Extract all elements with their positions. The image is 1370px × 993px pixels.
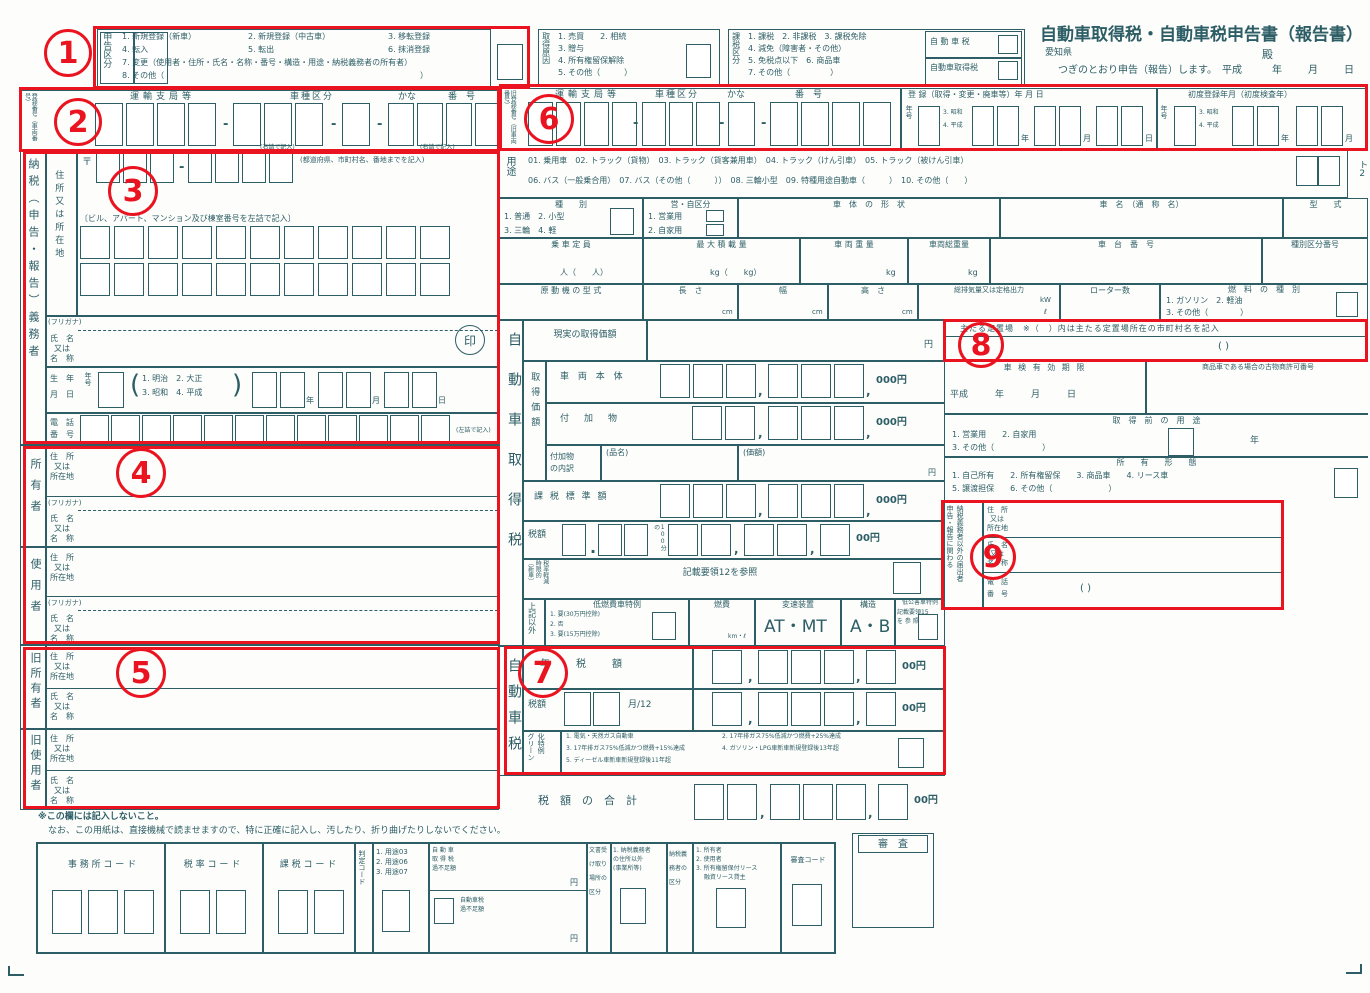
yoto-code-box[interactable] (1296, 156, 1318, 186)
birth-label: 生 年 (50, 374, 74, 384)
kyu-shiyosha-label: 旧使用者 (27, 734, 43, 806)
entry-box[interactable] (997, 106, 1019, 146)
jidoshazei-check-box[interactable] (998, 35, 1018, 54)
jusho-label: 所在地 (50, 672, 74, 682)
entry-box[interactable] (114, 226, 144, 259)
entry-box[interactable] (642, 102, 666, 146)
tax-declaration-form: 申告区分 1. 新規登録（新車） 2. 新規登録（中古車） 3. 移転登録 4.… (0, 0, 1370, 993)
entry-box[interactable] (768, 484, 798, 518)
entry-box[interactable] (1321, 106, 1343, 146)
tel-paren[interactable]: ( ) (1080, 582, 1091, 595)
atena-box[interactable] (716, 888, 746, 928)
entry-box[interactable] (346, 372, 371, 408)
birth-label: 月 日 (50, 390, 74, 400)
address-boxes (80, 263, 450, 296)
entry-box[interactable] (420, 226, 450, 259)
entry-box[interactable] (820, 524, 850, 556)
separator: - (376, 117, 383, 132)
saidai-unit: kg（ kg） (710, 268, 761, 278)
entry-box[interactable] (660, 484, 690, 518)
entry-box[interactable] (126, 103, 154, 146)
kubun-no-header: 種別区分番号 (1262, 240, 1368, 250)
entry-box[interactable] (834, 364, 864, 398)
yen000: 000円 (876, 494, 907, 507)
tel-boxes (80, 415, 450, 442)
teichiba-paren[interactable]: ( ) (1218, 340, 1229, 353)
jokigai-label: 上記以外 (527, 602, 537, 644)
entry-box[interactable] (692, 406, 722, 440)
birth-gengo-box[interactable] (98, 372, 124, 408)
entry-box[interactable] (801, 364, 831, 398)
jusho-label: 所在地 (987, 524, 1008, 532)
postal-boxes (188, 153, 293, 183)
entry-box[interactable] (446, 103, 472, 146)
page-title: 自動車取得税・自動車税申告書（報告書） (1040, 20, 1363, 45)
hensoku-header: 変速装置 (756, 600, 840, 610)
kozo-header: 構造 (842, 600, 894, 610)
hyojun-boxes (660, 484, 756, 518)
keigen-box[interactable] (893, 562, 921, 594)
zeigaku-boxes (758, 692, 854, 726)
entry-box[interactable] (803, 784, 833, 820)
option-label: 1. ガソリン 2. 軽油 (1166, 296, 1242, 306)
annotation-circle-1: 1 (44, 29, 92, 77)
entry-box[interactable] (88, 890, 118, 934)
entry-box[interactable] (660, 364, 690, 398)
entry-box[interactable] (80, 263, 110, 296)
bango-header: 番 号 (795, 90, 822, 101)
keigen-label-group: 〔新車〕 時限的 税率軽減 (526, 560, 548, 584)
atena-label: 務者の (669, 866, 687, 873)
entry-box[interactable] (768, 364, 798, 398)
period: . (590, 538, 596, 557)
hantei-code-box[interactable] (382, 890, 410, 932)
entry-box[interactable] (412, 372, 437, 408)
day-unit: 日 (438, 396, 446, 406)
tel-label: 電 話 (50, 418, 74, 428)
keitai-header: 所 有 形 態 (945, 458, 1368, 468)
entry-box[interactable] (342, 103, 370, 146)
option-label: (事業所等) (613, 866, 642, 873)
entry-box[interactable] (182, 226, 212, 259)
year-unit: 年 (1281, 134, 1289, 144)
entry-box[interactable] (180, 890, 210, 934)
rate-box[interactable] (562, 524, 586, 556)
entry-box[interactable] (696, 102, 720, 146)
entry-box[interactable] (801, 102, 829, 146)
entry-box[interactable] (824, 692, 854, 726)
kisai15-note: を 参 照 (897, 619, 919, 626)
entry-box[interactable] (1096, 106, 1118, 146)
shinkoku-kubun-label: 申告区分 (100, 32, 111, 84)
comma: , (760, 806, 765, 820)
nenzei-boxes (866, 650, 896, 684)
first-reg-header: 初度登録年月（初度検査年） (1188, 90, 1292, 100)
keitai-box[interactable] (1334, 468, 1358, 498)
zeiritsu-code-boxes (180, 890, 246, 934)
zeigaku-label: 税額 (528, 530, 546, 541)
comma: , (856, 670, 861, 684)
annotation-number: 6 (539, 102, 560, 137)
gengo-note: 3. 昭和 (943, 110, 963, 117)
option-label: 2. 自家用 (648, 226, 682, 236)
zeigaku-boxes (866, 692, 896, 726)
shimei-label: 氏 名 (50, 334, 74, 344)
months-box[interactable] (593, 692, 620, 726)
entry-box[interactable] (188, 153, 212, 183)
entry-box[interactable] (284, 226, 314, 259)
entry-box[interactable] (80, 226, 110, 259)
mae-yoto-box[interactable] (1168, 428, 1194, 456)
entry-box[interactable] (148, 263, 178, 296)
entry-box[interactable] (728, 102, 755, 146)
entry-box[interactable] (834, 406, 864, 440)
tel-label: 番 号 (50, 430, 74, 440)
entry-box[interactable] (148, 226, 178, 259)
entry-box[interactable] (157, 103, 185, 146)
touroku-bango-label: 登録番号（車両番号） (23, 93, 36, 147)
entry-box[interactable] (824, 650, 854, 684)
green-box[interactable] (898, 738, 924, 768)
entry-box[interactable] (233, 103, 261, 146)
entry-box[interactable] (475, 103, 501, 146)
entry-box[interactable] (328, 415, 357, 442)
entry-box[interactable] (836, 784, 866, 820)
entry-box[interactable] (142, 415, 171, 442)
atena-label: 区分 (669, 880, 681, 887)
entry-box[interactable] (725, 406, 755, 440)
entry-box[interactable] (417, 103, 443, 146)
gengo-box[interactable] (1174, 106, 1196, 146)
year-unit: 年 (1250, 436, 1259, 447)
entry-box[interactable] (173, 415, 202, 442)
shimei-label: 名 称 (50, 534, 74, 544)
annotation-number: 8 (971, 328, 992, 363)
comma: , (758, 426, 763, 440)
yen-unit: 円 (928, 468, 936, 478)
shinkoku-kubun-code-box[interactable] (497, 44, 523, 80)
yoto-codes-line2: 06. バス（一般乗合用） 07. バス（その他（ ）） 08. 三輪小型 09… (528, 176, 972, 186)
shutokuzei-check-box[interactable] (998, 61, 1018, 80)
entry-box[interactable] (318, 263, 348, 296)
entry-box[interactable] (252, 372, 277, 408)
shinsa-code-box[interactable] (792, 884, 822, 926)
jikayo-box[interactable] (706, 224, 724, 236)
month-boxes (1034, 106, 1081, 146)
option-label: 1. 自己所有 2. 所有権留保 3. 商品車 4. リース車 (952, 471, 1168, 481)
rate-box[interactable] (598, 524, 622, 556)
shinsa-code-header: 審査コード (781, 856, 835, 864)
juryo-header: 車 両 重 量 (800, 240, 908, 250)
year-unit: 年 (306, 396, 314, 406)
todokede-label: 申告・報告に関わる 納税義務者以外の届出者 (946, 505, 964, 582)
address-boxes (80, 226, 450, 259)
bunsho-label: 場所の (589, 876, 607, 883)
kana-header: かな (727, 90, 745, 101)
annotation-number: 7 (533, 656, 554, 691)
entry-box[interactable] (1034, 106, 1056, 146)
option-label: 1. 所有者 (696, 848, 722, 855)
separator: - (222, 117, 229, 132)
entry-box[interactable] (352, 226, 382, 259)
entry-box[interactable] (801, 406, 831, 440)
fukabutsu-label: 付 加 物 (560, 414, 620, 425)
hontai-boxes (768, 364, 864, 398)
entry-box[interactable] (1059, 106, 1081, 146)
entry-box[interactable] (250, 263, 280, 296)
entry-box[interactable] (52, 890, 82, 934)
takasa-header: 高 さ (828, 286, 918, 296)
option-label: の住所以外 (613, 857, 643, 864)
option-label: 1. 納税義務者 (613, 848, 651, 855)
entry-box[interactable] (111, 415, 140, 442)
kafusoku-label: 取 得 税 (432, 857, 454, 864)
yen-unit: 円 (570, 934, 578, 944)
entry-box[interactable] (269, 153, 293, 183)
entry-box[interactable] (280, 372, 305, 408)
entry-box[interactable] (693, 364, 723, 398)
entry-box[interactable] (182, 263, 212, 296)
option-label: 3. 17年排ガス75%低減かつ燃費+15%達成 (566, 746, 685, 753)
option-label: 2. 使用者 (696, 857, 722, 864)
gengo-box[interactable] (918, 106, 940, 146)
entry-box[interactable] (284, 263, 314, 296)
furigana-label: (フリガナ) (48, 599, 81, 607)
option-label: 3. 所有権留保付リース (696, 866, 757, 873)
entry-box[interactable] (770, 784, 800, 820)
yoto-codes-line1: 01. 乗用車 02. トラック（貨物） 03. トラック（貨客兼用車） 04.… (528, 156, 968, 166)
jimusho-code-header: 事 務 所 コ ー ド (44, 860, 160, 871)
entry-box[interactable] (384, 372, 409, 408)
entry-box[interactable] (235, 415, 264, 442)
entry-box[interactable] (421, 415, 450, 442)
mae-yoto-header: 取 得 前 の 用 途 (945, 416, 1368, 426)
entry-box[interactable] (216, 263, 246, 296)
nozei-gimusha-label: 納税（申告・報告）義務者 (25, 158, 41, 438)
option-label: 2. 用途06 (376, 858, 408, 866)
entry-box[interactable] (834, 484, 864, 518)
kyu-touroku-label: 旧登録番号（旧車両番号） (502, 90, 515, 148)
zeigaku-boxes (712, 692, 742, 726)
year-label: 年 (1272, 64, 1282, 77)
shashu-kubun-header: 車種区分 (655, 90, 699, 101)
option-label: 融資リース貸主 (696, 875, 746, 882)
eigyo-box[interactable] (706, 210, 724, 222)
entry-box[interactable] (114, 263, 144, 296)
entry-box[interactable] (669, 102, 693, 146)
entry-box[interactable] (758, 650, 788, 684)
year-boxes (972, 106, 1019, 146)
hinmei-label: (品名) (606, 448, 628, 458)
gengo-note: 3. 昭和 (1199, 110, 1219, 117)
zeigaku-boxes (744, 524, 807, 556)
option-label: 4. 所有権留保解除 (558, 56, 624, 66)
todokede-label-col: 申告・報告に関わる (946, 505, 954, 582)
keigen-label: 時限的 (534, 560, 541, 584)
kogai-box[interactable] (918, 614, 938, 640)
yen00: 00円 (856, 532, 880, 545)
entry-box[interactable] (668, 524, 698, 556)
tel-note: (左詰で記入) (456, 428, 491, 435)
entry-box[interactable] (726, 484, 756, 518)
option-label: 1. 電気・天然ガス自動車 (566, 734, 634, 741)
jusho-label: 又は (54, 662, 70, 672)
entry-box[interactable] (295, 103, 323, 146)
entry-box[interactable] (768, 406, 798, 440)
cm-unit: cm (902, 308, 913, 316)
green-label: グリーン (527, 733, 535, 761)
entry-box[interactable] (124, 890, 154, 934)
entry-box[interactable] (863, 102, 891, 146)
option-label: 8. その他（ (122, 71, 164, 81)
gengo-note: 4. 平成 (1199, 123, 1219, 130)
comma: , (734, 542, 739, 556)
entry-box[interactable] (388, 103, 414, 146)
entry-box[interactable] (297, 415, 326, 442)
kagaku-label: (価額) (743, 448, 765, 458)
entry-box[interactable] (80, 415, 109, 442)
comma: , (866, 426, 871, 440)
separator: - (330, 117, 337, 132)
entry-box[interactable] (693, 484, 723, 518)
entry-box[interactable] (726, 364, 756, 398)
option-label: 5. ディーゼル車新車新規登録後11年超 (566, 758, 671, 765)
entry-box[interactable] (266, 415, 295, 442)
shaken-date[interactable]: 平成 年 月 日 (950, 390, 1076, 401)
hyojun-label: 課 税 標 準 額 (534, 492, 608, 503)
option-label: 1. 営業用 2. 自家用 (952, 430, 1036, 440)
entry-box[interactable] (1296, 106, 1318, 146)
entry-box[interactable] (694, 784, 724, 820)
kazei-code-boxes (278, 890, 344, 934)
annotation-circle-6: 6 (524, 94, 574, 144)
entry-box[interactable] (204, 415, 233, 442)
yen00: 00円 (902, 702, 926, 715)
annotation-circle-5: 5 (116, 648, 166, 698)
touroku-date-header: 登 録（取得・変更・廃車等）年 月 日 (908, 90, 1044, 100)
entry-box[interactable] (584, 102, 609, 146)
unyu-boxes (95, 103, 216, 146)
entry-box[interactable] (712, 650, 742, 684)
entry-box[interactable] (777, 524, 807, 556)
entry-box[interactable] (188, 103, 216, 146)
jusho-label: 住 所 (50, 553, 74, 563)
furigana-label: (フリガナ) (48, 318, 81, 326)
rate-box[interactable] (624, 524, 648, 556)
entry-box[interactable] (352, 263, 382, 296)
entry-box[interactable] (866, 650, 896, 684)
tel-label: 番 号 (987, 590, 1008, 598)
entry-box[interactable] (744, 524, 774, 556)
keigen-label: 税率軽減 (541, 560, 548, 584)
entry-box[interactable] (264, 103, 292, 146)
yoto-code-box[interactable] (1318, 156, 1340, 186)
nenryo-box[interactable] (1336, 292, 1358, 317)
entry-box[interactable] (832, 102, 860, 146)
entry-box[interactable] (250, 226, 280, 259)
entry-box[interactable] (216, 890, 246, 934)
entry-box[interactable] (727, 784, 757, 820)
entry-box[interactable] (1121, 106, 1143, 146)
entry-box[interactable] (390, 415, 419, 442)
annotation-circle-7: 7 (518, 648, 568, 698)
entry-box[interactable] (314, 890, 344, 934)
teinenpi-box[interactable] (652, 612, 676, 640)
comma: , (866, 504, 871, 518)
kazei-kubun-label: 課税区分 (731, 32, 741, 84)
corner-mark (1346, 964, 1362, 974)
entry-box[interactable] (215, 153, 239, 183)
gokei-boxes (878, 784, 908, 820)
entry-box[interactable] (1257, 106, 1279, 146)
option-label: 5. 免税点以下 6. 商品車 (748, 56, 840, 66)
entry-box[interactable] (242, 153, 266, 183)
entry-box[interactable] (420, 263, 450, 296)
month-unit: 月 (372, 396, 380, 406)
entry-box[interactable] (701, 524, 731, 556)
entry-box[interactable] (791, 692, 821, 726)
separator: - (760, 116, 767, 131)
shamei-header: 車 名 （通 称 名） (1000, 200, 1283, 210)
option-label: 3. その他（ ） (952, 443, 1050, 453)
entry-box[interactable] (1232, 106, 1254, 146)
shinsa-header: 審 査 (858, 835, 928, 853)
entry-box[interactable] (791, 650, 821, 684)
shoyusha-label: 所有者 (27, 458, 43, 538)
entry-box[interactable] (386, 263, 416, 296)
annotation-number: 5 (131, 656, 152, 691)
hontai-label: 車 両 本 体 (560, 372, 626, 383)
note-line2: なお、この用紙は、直接機械で読ませますので、特に正確に記入し、汚したり、折り曲げ… (48, 826, 506, 837)
jusho-label: 住 所 (50, 652, 74, 662)
entry-box[interactable] (359, 415, 388, 442)
birth-day-boxes (384, 372, 437, 408)
shubetsu-box[interactable] (610, 208, 634, 235)
entry-box[interactable] (278, 890, 308, 934)
entry-box[interactable] (972, 106, 994, 146)
shatai-header: 車 体 の 形 状 (738, 200, 1000, 210)
todokede-label-col: 納税義務者以外の届出者 (956, 505, 964, 582)
gengo-label: 年号 (905, 105, 913, 145)
shimei-label: 氏 名 (50, 514, 74, 524)
entry-box[interactable] (866, 692, 896, 726)
entry-box[interactable] (770, 102, 798, 146)
hontai-boxes (660, 364, 756, 398)
teinenpi-header: 低燃費車特例 (546, 600, 688, 610)
building-note: 〔ビル、アパート、マンション及び棟室番号を左詰で記入〕 (80, 214, 296, 224)
entry-box[interactable] (386, 226, 416, 259)
entry-box[interactable] (712, 692, 742, 726)
shashu-boxes-old (642, 102, 720, 146)
nenzei-boxes (712, 650, 742, 684)
jusho-label: 住 所 (50, 452, 74, 462)
separator: - (718, 116, 725, 131)
entry-box[interactable] (758, 692, 788, 726)
shutokuzei-row-label: 自動車取得税 (930, 63, 978, 73)
entry-box[interactable] (801, 484, 831, 518)
entry-box[interactable] (318, 372, 343, 408)
entry-box[interactable] (878, 784, 908, 820)
months-box[interactable] (564, 692, 591, 726)
postal-mark: 〒 (82, 156, 92, 169)
l-unit: ℓ (1044, 308, 1047, 316)
kafusoku-box[interactable] (434, 898, 454, 924)
entry-box[interactable] (216, 226, 246, 259)
shutoku-genin-code-box[interactable] (686, 44, 711, 78)
entry-box[interactable] (318, 226, 348, 259)
bunsho-box[interactable] (620, 888, 646, 924)
cm-unit: cm (722, 308, 733, 316)
